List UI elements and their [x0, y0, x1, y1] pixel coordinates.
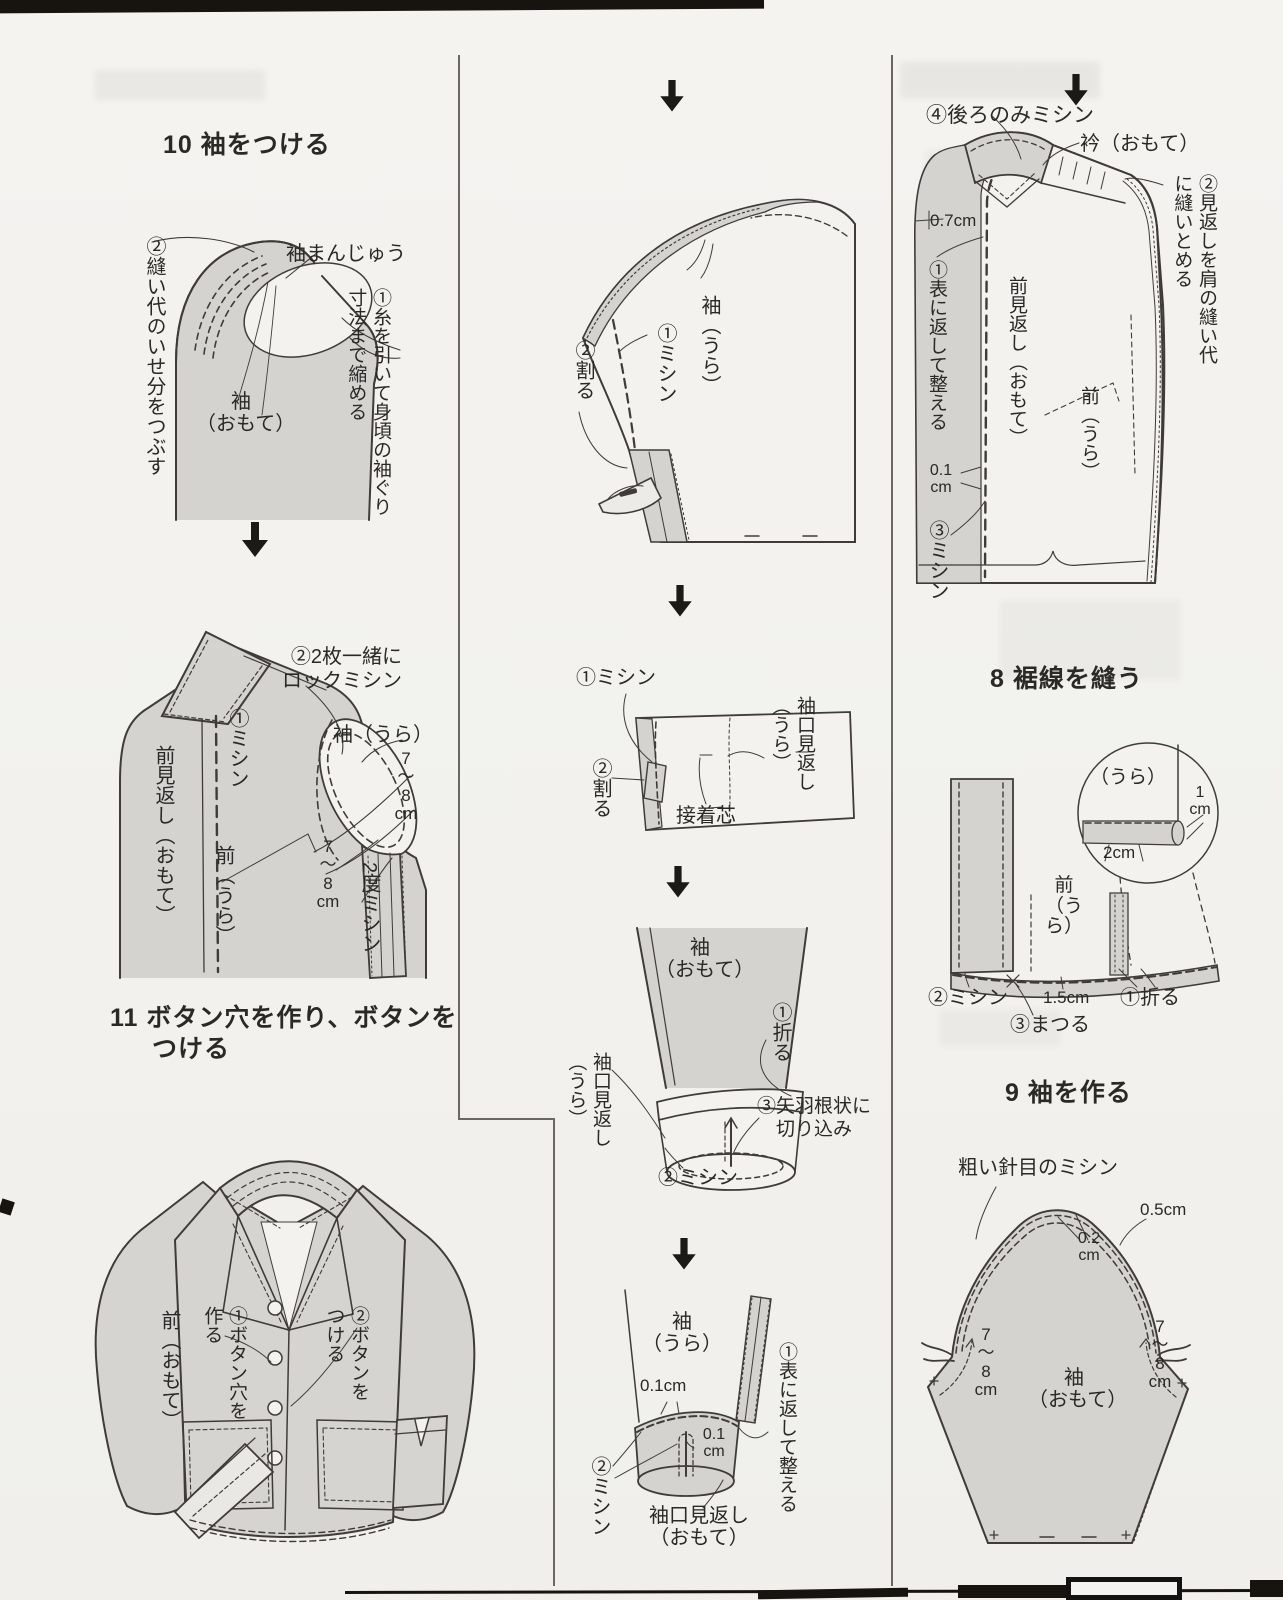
label-lock-stitch: ②2枚一緒に ロックミシン — [270, 645, 402, 694]
label-front-back: 前（うら） — [204, 845, 236, 965]
label-m4-sleeve: 袖 （うら） — [642, 1312, 722, 1355]
label-m4-stitch: ②ミシン — [580, 1456, 612, 1538]
label-jacket-front: 前（おもて） — [148, 1310, 182, 1425]
label-r1-tack-facing: ②見返しを肩の縫い代に縫いとめる — [1160, 174, 1218, 382]
label-m2-interfacing: 接着芯 — [676, 804, 736, 828]
label-r3-78cm-right: 7 〜 8 cm — [1142, 1318, 1178, 1391]
down-arrow-mid-4 — [670, 1238, 698, 1274]
label-sleeve-manju: 袖まんじゅう — [286, 242, 406, 266]
label-m4-cuff-facing: 袖口見返し （おもて） — [630, 1506, 768, 1549]
label-m3-fold: ①折る — [761, 1002, 793, 1074]
scan-box-mark — [1066, 1577, 1182, 1600]
sleeve-ease-diagram — [150, 230, 460, 520]
label-m3-sleeve: 袖 （おもて） — [655, 938, 745, 981]
label-r3-78cm-left: 7 〜 8 cm — [968, 1326, 1004, 1399]
label-r3-baste: 粗い針目のミシン — [958, 1156, 1118, 1180]
label-r1-turn: ①表に返して整える — [916, 260, 948, 448]
label-7-8cm-right: 7 〜 8 cm — [388, 750, 424, 823]
label-r3-02cm: 0.2 cm — [1068, 1230, 1110, 1265]
label-m1-stitch: ①ミシン — [646, 323, 678, 413]
label-r2-blindstitch: ③まつる — [1010, 1013, 1090, 1037]
down-arrow-mid-3 — [664, 866, 692, 902]
label-r1-07cm: 0.7cm — [930, 211, 976, 232]
label-m3-clip: ③矢羽根状に 切り込み — [757, 1095, 887, 1141]
label-r1-front-back: 前（うら） — [1068, 386, 1100, 481]
step11-heading-line2: つける — [152, 1034, 230, 1065]
label-7-8cm-left: 7 〜 8 cm — [310, 838, 346, 911]
label-m1-sleeve-back: 袖（うら） — [688, 295, 722, 395]
jacket-diagram — [75, 1090, 500, 1570]
step8-heading: 8 裾線を縫う — [990, 664, 1143, 695]
label-twice-stitch: 2度ミシン — [348, 862, 382, 977]
label-sleeve-back: 袖（うら） — [333, 723, 433, 747]
label-shrink-note: ①糸を引いて身頃の袖ぐり寸法まで縮める — [334, 288, 392, 516]
scan-blot-1 — [758, 1588, 908, 1600]
label-r2-2cm: 2cm — [1103, 843, 1135, 864]
sewing-instructions-page: 10 袖をつける ②縫い代のいせ分をつぶす 袖まんじゅう ①糸を引いて身頃の袖ぐ… — [0, 0, 1283, 1600]
label-m2-press-open: ②割る — [581, 758, 613, 828]
label-m2-cuff-facing: 袖口見返し（うら） — [762, 696, 816, 806]
scan-blot-left — [0, 1198, 15, 1215]
label-r2-15cm: 1.5cm — [1043, 988, 1089, 1009]
label-ease-note: ②縫い代のいせ分をつぶす — [135, 236, 167, 486]
step10-heading: 10 袖をつける — [163, 130, 331, 161]
bleedthrough-1 — [95, 70, 265, 100]
label-attach-button: ②ボタンをつける — [308, 1306, 370, 1418]
label-m2-stitch: ①ミシン — [576, 666, 656, 690]
scan-blot-3 — [1250, 1580, 1283, 1597]
step11-heading-line1: 11 ボタン穴を作り、ボタンを — [110, 1003, 457, 1034]
column-divider-right — [891, 55, 893, 1586]
label-m4-01cm-top: 0.1cm — [640, 1376, 686, 1397]
label-r1-back-stitch: ④後ろのみミシン — [926, 103, 1094, 129]
label-r2-inset-back: （うら） — [1090, 766, 1166, 789]
label-make-buttonhole: ①ボタン穴を作る — [186, 1306, 248, 1438]
label-r1-stitch: ③ミシン — [916, 520, 950, 605]
label-m4-turn: ①表に返して整える — [766, 1342, 798, 1530]
label-r1-collar: 衿（おもて） — [1080, 132, 1199, 156]
label-r1-front-facing: 前見返し（おもて） — [996, 276, 1028, 454]
down-arrow-left — [240, 522, 270, 562]
label-r1-01cm: 0.1 cm — [920, 462, 962, 497]
label-m3-stitch: ②ミシン — [658, 1166, 738, 1190]
step9-heading: 9 袖を作る — [1005, 1078, 1132, 1109]
label-r2-fold: ①折る — [1120, 986, 1180, 1010]
label-r3-sleeve: 袖 （おもて） — [1028, 1368, 1120, 1411]
label-r2-front-back: 前 （うら） — [1032, 876, 1096, 938]
sleeve-seam-diagram — [555, 150, 890, 560]
label-sleeve-front: 袖 （おもて） — [196, 392, 286, 435]
label-front-facing: 前見返し（おもて） — [144, 745, 176, 945]
label-r3-05cm: 0.5cm — [1140, 1200, 1186, 1221]
label-m1-press-open: ②割る — [564, 340, 596, 415]
label-r2-stitch: ②ミシン — [928, 986, 1008, 1010]
scan-edge-top — [0, 0, 764, 13]
down-arrow-mid-2 — [666, 585, 694, 621]
label-m4-01cm-inner: 0.1 cm — [693, 1426, 735, 1461]
label-r2-1cm: 1 cm — [1184, 784, 1216, 819]
label-armhole-stitch: ①ミシン — [218, 708, 250, 798]
down-arrow-mid-1 — [658, 80, 686, 116]
label-m3-cuff-facing: 袖口見返し（うら） — [556, 1052, 612, 1160]
